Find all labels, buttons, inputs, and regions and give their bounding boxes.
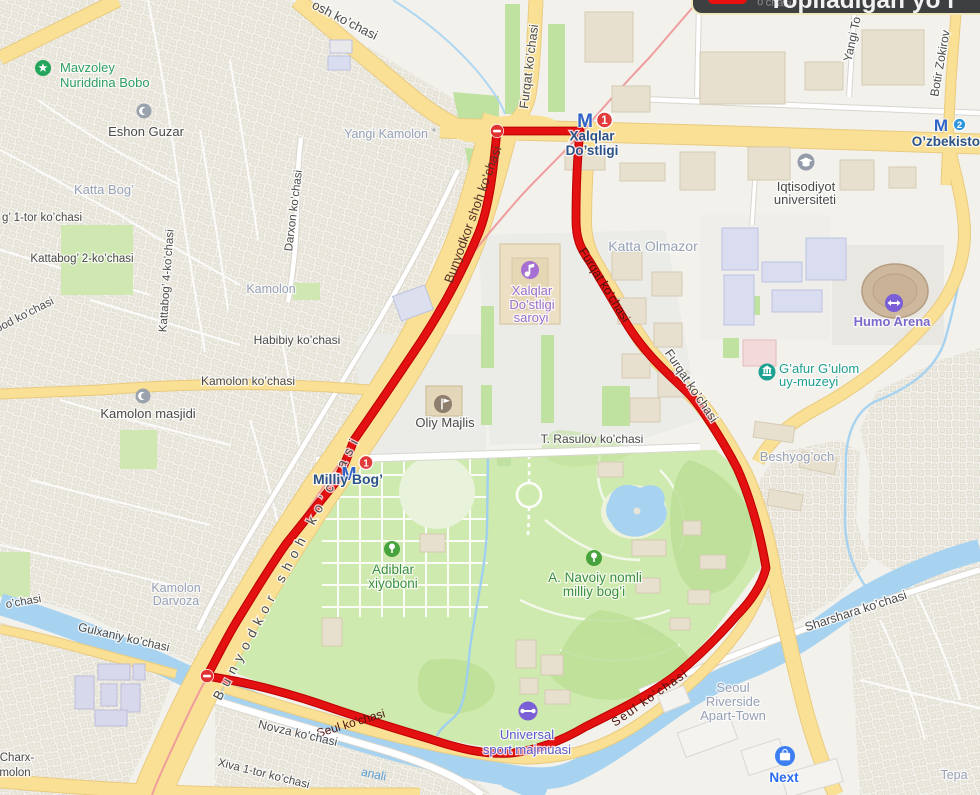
svg-text:Mavzoley: Mavzoley: [60, 60, 115, 75]
svg-text:Kamolon: Kamolon: [151, 581, 200, 595]
svg-text:Kattabog’ 2-ko’chasi: Kattabog’ 2-ko’chasi: [30, 253, 133, 265]
svg-text:Beshyog’och: Beshyog’och: [760, 449, 834, 464]
svg-text:saroyi: saroyi: [514, 310, 549, 325]
svg-text:Yangi Kamolon: Yangi Kamolon: [344, 127, 428, 141]
svg-text:Eshon Guzar: Eshon Guzar: [108, 124, 185, 139]
svg-text:Oliy Majlis: Oliy Majlis: [415, 415, 475, 430]
svg-text:A. Navoiy nomli: A. Navoiy nomli: [548, 570, 642, 585]
svg-text:Katta Olmazor: Katta Olmazor: [608, 238, 698, 254]
svg-text:Universal: Universal: [500, 727, 554, 742]
svg-text:Kamolon ko’chasi: Kamolon ko’chasi: [201, 374, 295, 388]
svg-text:Kamolon: Kamolon: [246, 282, 295, 296]
svg-text:Charx-: Charx-: [0, 752, 34, 764]
svg-text:uy-muzeyi: uy-muzeyi: [779, 374, 838, 389]
svg-text:Seoul: Seoul: [716, 680, 749, 695]
svg-text:Humo Arena: Humo Arena: [854, 314, 932, 329]
svg-text:Next: Next: [769, 770, 799, 785]
svg-text:2: 2: [957, 120, 962, 131]
svg-text:Tepa: Tepa: [940, 768, 967, 782]
svg-text:Darvoza: Darvoza: [153, 594, 200, 608]
svg-text:O’zbekiston: O’zbekiston: [912, 134, 980, 149]
svg-text:1: 1: [363, 458, 369, 469]
svg-text:Xalqlar: Xalqlar: [512, 283, 553, 298]
svg-text:xiyoboni: xiyoboni: [368, 576, 418, 591]
svg-text:Yopiladigan yo’l: Yopiladigan yo’l: [768, 0, 954, 14]
svg-text:Katta Bog’: Katta Bog’: [74, 182, 134, 197]
svg-text:Adiblar: Adiblar: [372, 562, 415, 577]
svg-text:Kamolon masjidi: Kamolon masjidi: [100, 406, 195, 421]
svg-text:sport majmuasi: sport majmuasi: [483, 742, 571, 757]
svg-text:g’ 1-tor ko’chasi: g’ 1-tor ko’chasi: [2, 212, 82, 224]
svg-text:1: 1: [601, 115, 608, 127]
svg-text:Nuriddina Bobo: Nuriddina Bobo: [60, 75, 150, 90]
svg-text:Habibiy ko’chasi: Habibiy ko’chasi: [254, 333, 341, 347]
svg-text:molon: molon: [0, 767, 31, 779]
svg-text:Milliy Bog’: Milliy Bog’: [313, 471, 383, 487]
svg-text:universiteti: universiteti: [774, 192, 836, 207]
svg-text:Xalqlar: Xalqlar: [569, 129, 615, 144]
svg-text:Riverside: Riverside: [706, 694, 760, 709]
svg-text:T. Rasulov ko’chasi: T. Rasulov ko’chasi: [541, 432, 644, 446]
svg-text:M: M: [934, 116, 948, 135]
svg-text:Do’stligi: Do’stligi: [566, 143, 619, 158]
svg-text:Apart-Town: Apart-Town: [700, 708, 766, 723]
svg-text:milliy bog’i: milliy bog’i: [563, 584, 625, 599]
